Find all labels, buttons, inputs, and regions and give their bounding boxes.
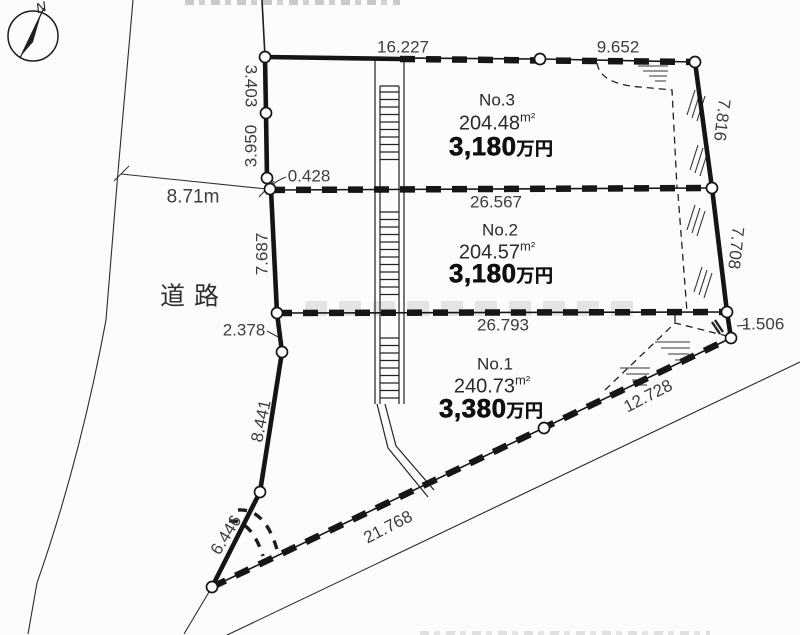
- plot3-price: 3,180万円: [449, 133, 554, 159]
- dim-top-edge-right: 9.652: [597, 39, 640, 56]
- plot3-number: No.3: [479, 92, 515, 109]
- compass-icon: [8, 8, 58, 61]
- dim-top-edge-left: 16.227: [377, 39, 429, 56]
- plot2-price-unit: 万円: [516, 266, 553, 286]
- dim-right-c: 1.506: [742, 316, 785, 333]
- plot3-price-number: 3,180: [449, 131, 517, 161]
- site-plan-drawing: [0, 0, 800, 635]
- road-left-edge-line: [28, 0, 133, 634]
- plot3-area-unit: m²: [520, 110, 535, 125]
- plot3-area: 204.48m²: [459, 111, 535, 134]
- dim-no2-no1-boundary: 26.793: [477, 317, 529, 334]
- slope-hatch-marks: [620, 66, 712, 385]
- dim-left-a: 3.403: [243, 65, 260, 108]
- dim-no3-no2-boundary: 26.567: [470, 194, 522, 211]
- dim-road-width: 8.71m: [167, 188, 220, 207]
- boundary-extension-line: [184, 587, 212, 634]
- land-plot-diagram: N 道路 8.71m 16.227 9.652 3.403 3.950 0.42…: [0, 0, 800, 635]
- plot1-price: 3,380万円: [439, 395, 544, 421]
- dim-left-jog: 0.428: [288, 168, 331, 185]
- plot1-price-number: 3,380: [439, 393, 507, 423]
- plot2-area-unit: m²: [520, 239, 535, 254]
- dim-right-b: 7.708: [725, 226, 746, 270]
- plot2-number: No.2: [482, 222, 518, 239]
- top-boundary-solid: [265, 57, 400, 59]
- stair-corridor: [375, 60, 434, 497]
- plot2-price-number: 3,180: [449, 258, 517, 288]
- plot1-price-unit: 万円: [506, 401, 543, 421]
- plot1-area-unit: m²: [515, 373, 530, 388]
- road-right-edge-line: [262, 0, 265, 57]
- stair-steps: [380, 92, 399, 398]
- dim-left-b: 3.950: [243, 125, 260, 168]
- road-label: 道路: [160, 285, 228, 310]
- plot1-number: No.1: [477, 356, 513, 373]
- dim-left-c: 7.687: [254, 233, 271, 276]
- plot2-price: 3,180万円: [449, 260, 554, 286]
- corner-hatch-marks: [712, 320, 723, 334]
- slope-top-dashed-lines: [597, 63, 727, 390]
- no3-no2-divider: [270, 188, 712, 190]
- plot3-price-unit: 万円: [516, 139, 553, 159]
- dim-left-d: 2.378: [223, 322, 266, 339]
